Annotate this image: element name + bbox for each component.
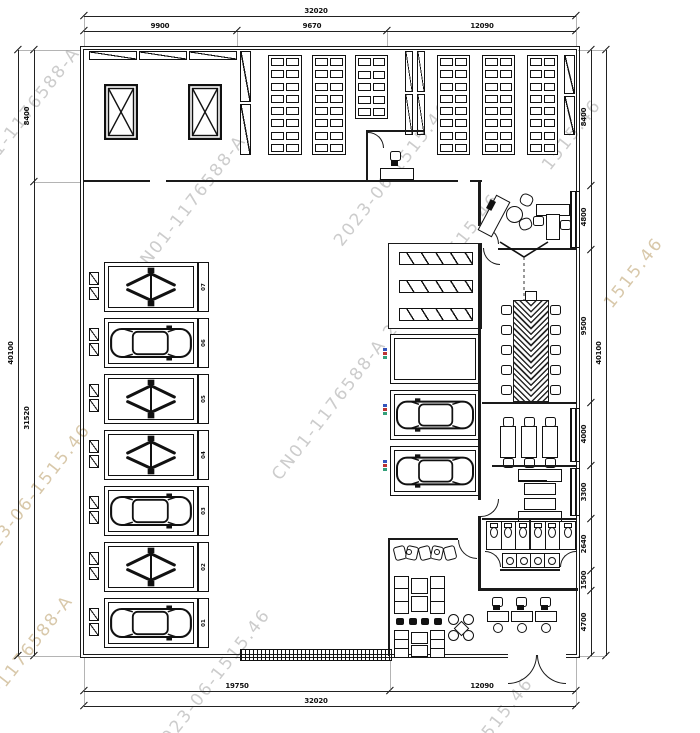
equipment-marker (383, 460, 387, 471)
dim-line (84, 691, 576, 692)
storage-rack (312, 55, 346, 155)
room-wall (388, 538, 390, 656)
ext-line (84, 658, 85, 706)
floor-plan: CN01-1176588-A CN01-1176588-A CN01-11765… (0, 0, 700, 733)
sofa (394, 630, 409, 658)
ext-line (390, 660, 391, 691)
car-icon (395, 395, 475, 435)
storage-rack (482, 55, 515, 155)
watermark-text: CN01-1176588-A (0, 43, 85, 192)
divider-cabinet (563, 54, 576, 136)
work-bay (104, 486, 198, 536)
toilet-stalls (486, 521, 576, 550)
chair (493, 623, 503, 633)
reception-desk (511, 611, 533, 622)
display-table (394, 617, 444, 626)
dim-label: 12090 (470, 682, 493, 690)
computer-icon (493, 605, 500, 610)
bay-number: 07 (198, 262, 209, 312)
room-wall (492, 465, 576, 467)
car-icon (109, 323, 193, 363)
bay-number: 02 (198, 542, 209, 592)
window (570, 468, 580, 516)
dim-line (84, 16, 576, 17)
lift-icon (109, 547, 193, 587)
chair (541, 623, 551, 633)
ext-line (576, 16, 577, 46)
partition-wall (366, 180, 458, 182)
side-table (434, 549, 440, 555)
dim-line (84, 31, 576, 32)
work-bay (390, 446, 480, 496)
table-cluster (448, 614, 474, 642)
storage-rack (268, 55, 302, 155)
dim-label: 1500 (580, 571, 588, 590)
tool-cabinet (88, 439, 100, 469)
bay-number: 03 (198, 486, 209, 536)
dim-line (606, 50, 607, 656)
main-wall (478, 516, 481, 590)
storage-rack (355, 55, 388, 119)
ext-line (34, 182, 80, 183)
tool-cabinet (88, 607, 100, 637)
coffee-table (411, 632, 428, 644)
chair (390, 151, 401, 161)
dim-label: 32020 (304, 697, 327, 705)
room-wall (500, 569, 560, 571)
dim-line (84, 706, 576, 707)
bay-number: 06 (198, 318, 209, 368)
partition-wall (84, 180, 150, 182)
workstation-desk (521, 426, 537, 458)
work-bay-empty (390, 334, 480, 384)
dim-label: 3300 (580, 483, 588, 502)
dim-label: 31520 (23, 406, 31, 429)
dim-label: 32020 (304, 7, 327, 15)
meeting-chairs-right (550, 305, 559, 395)
table-end-unit (525, 291, 537, 301)
partition-wall (166, 180, 366, 182)
room-wall (388, 538, 458, 540)
work-bay (104, 318, 198, 368)
coffee-table (411, 596, 428, 612)
dim-label: 9900 (151, 22, 170, 30)
dim-label: 4700 (580, 613, 588, 632)
tool-cabinet (88, 327, 100, 357)
dim-label: 40100 (595, 341, 603, 364)
office-wall (366, 130, 424, 132)
coffee-table (524, 498, 556, 510)
dim-label: 2640 (580, 535, 588, 554)
lift-icon (109, 267, 193, 307)
equipment-xbox-icon (104, 84, 138, 140)
shelf-rack (399, 280, 473, 293)
room-wall (482, 402, 576, 404)
dim-line (18, 50, 19, 656)
sofa (518, 469, 562, 482)
conference-table (513, 300, 549, 402)
window (570, 408, 580, 462)
dim-label: 8400 (580, 108, 588, 127)
main-wall (478, 180, 481, 226)
work-bay (390, 390, 480, 440)
computer-icon (517, 605, 524, 610)
workstation-desk (500, 426, 516, 458)
divider-cabinet (239, 50, 252, 156)
coffee-table (411, 645, 428, 657)
window (570, 191, 580, 248)
meeting-chairs-left (501, 305, 510, 395)
window-strip (88, 50, 238, 61)
coffee-table (524, 483, 556, 495)
tool-cabinet (88, 271, 100, 301)
work-bay (104, 598, 198, 648)
chair (533, 216, 544, 226)
equipment-xbox-icon (188, 84, 222, 140)
dim-label: 4800 (580, 208, 588, 227)
dim-label: 19750 (225, 682, 248, 690)
divider-cabinet (416, 50, 426, 136)
ext-line (237, 31, 238, 46)
reception-desk (535, 611, 557, 622)
ext-line (18, 656, 80, 657)
bay-number: 04 (198, 430, 209, 480)
sofa (430, 630, 445, 658)
office-desk (380, 168, 414, 180)
rack-room (388, 243, 482, 329)
tool-cabinet (88, 383, 100, 413)
watermark-text: 1515.46 (600, 234, 668, 313)
coffee-table (411, 578, 428, 594)
car-icon (109, 603, 193, 643)
bay-number: 05 (198, 374, 209, 424)
shelf-rack (399, 308, 473, 321)
dim-label: 40100 (7, 341, 15, 364)
computer-icon (541, 605, 548, 610)
ext-line (18, 50, 80, 51)
room-wall (478, 588, 578, 591)
bay-number: 01 (198, 598, 209, 648)
workstation-desk (542, 426, 558, 458)
sink-counter (502, 553, 560, 568)
dim-line (591, 50, 592, 656)
dim-label: 12090 (470, 22, 493, 30)
waiting-chairs (394, 546, 456, 560)
chair (503, 417, 514, 427)
dim-label: 9670 (303, 22, 322, 30)
sofa (394, 576, 409, 614)
shelf-rack (399, 252, 473, 265)
lift-icon (109, 379, 193, 419)
storage-rack (437, 55, 470, 155)
sofa (430, 576, 445, 614)
stall-divider (529, 520, 531, 549)
chair (524, 417, 535, 427)
car-icon (109, 491, 193, 531)
storage-rack (527, 55, 558, 155)
side-table (406, 549, 412, 555)
work-bay (104, 374, 198, 424)
roller-door (240, 649, 392, 661)
dim-label: 9500 (580, 317, 588, 336)
work-bay (104, 262, 198, 312)
ext-line (387, 31, 388, 46)
dim-label: 8400 (23, 107, 31, 126)
chair (545, 417, 556, 427)
divider-cabinet (404, 50, 414, 136)
dim-label: 4000 (580, 425, 588, 444)
work-bay (104, 430, 198, 480)
tool-cabinet (88, 495, 100, 525)
lift-icon (109, 435, 193, 475)
ext-line (576, 658, 577, 706)
double-door-icon (498, 240, 550, 302)
watermark-text: CN01-1176588-A (0, 591, 78, 733)
chair (560, 220, 571, 230)
chair (517, 623, 527, 633)
equipment-marker (383, 348, 387, 359)
ext-line (578, 656, 606, 657)
car-icon (395, 451, 475, 491)
work-bay (104, 542, 198, 592)
equipment-marker (383, 404, 387, 415)
dim-line (34, 50, 35, 656)
tool-cabinet (88, 551, 100, 581)
reception-desk (487, 611, 509, 622)
t-desk (546, 214, 560, 240)
main-wall (478, 244, 481, 500)
